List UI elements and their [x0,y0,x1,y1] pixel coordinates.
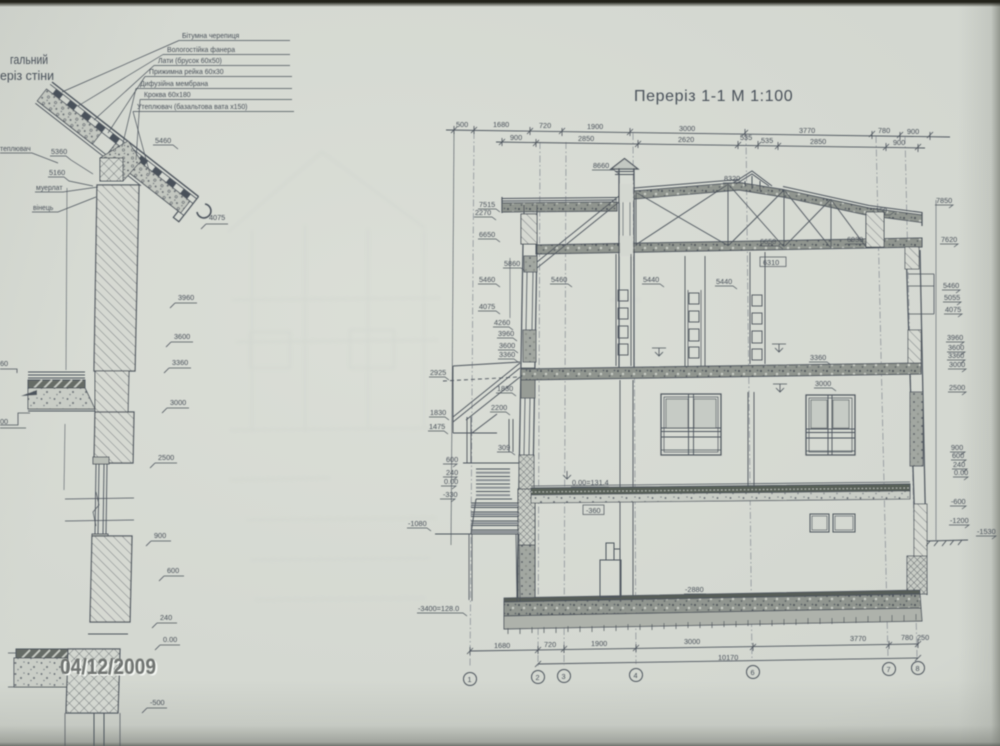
svg-text:04/12/2009: 04/12/2009 [60,654,156,679]
svg-text:0.00=131.4: 0.00=131.4 [572,478,609,487]
svg-text:теплювач: теплювач [0,146,31,153]
svg-text:2850: 2850 [578,134,594,143]
svg-text:вінець: вінець [33,204,54,212]
svg-text:3360: 3360 [810,353,826,362]
svg-text:3770: 3770 [799,126,815,135]
svg-text:4260: 4260 [494,318,510,327]
svg-text:3600: 3600 [174,332,190,341]
svg-text:3960: 3960 [947,333,963,342]
svg-text:535: 535 [740,133,752,142]
svg-text:6650: 6650 [760,237,776,246]
svg-text:1900: 1900 [587,122,603,131]
svg-text:1900: 1900 [591,639,607,648]
svg-text:3: 3 [562,672,566,681]
svg-text:-600: -600 [951,497,966,506]
svg-text:0.00: 0.00 [954,468,968,477]
svg-text:5460: 5460 [155,136,171,145]
svg-text:7620: 7620 [941,235,957,244]
svg-text:3360: 3360 [172,358,188,367]
svg-text:5055: 5055 [944,293,960,302]
svg-text:4075: 4075 [209,213,225,222]
svg-text:-360: -360 [586,506,601,515]
svg-text:250: 250 [917,633,929,642]
svg-text:-500: -500 [150,698,165,707]
svg-text:0.00: 0.00 [163,635,177,644]
svg-text:3960: 3960 [178,293,194,302]
svg-text:-1080: -1080 [408,519,427,528]
svg-text:муерлат: муерлат [36,185,63,192]
svg-text:6: 6 [751,668,755,677]
svg-text:535: 535 [761,136,773,145]
svg-text:5860: 5860 [504,259,520,268]
svg-text:5460: 5460 [551,275,567,284]
svg-text:4075: 4075 [945,305,961,314]
svg-text:240: 240 [446,468,458,477]
svg-text:-330: -330 [443,490,458,499]
svg-text:5160: 5160 [49,168,65,177]
svg-text:Переріз 1-1 М 1:100: Переріз 1-1 М 1:100 [634,88,793,105]
svg-text:Утеплювач (базальтова вата х15: Утеплювач (базальтова вата х150) [137,103,247,111]
svg-text:1830: 1830 [430,408,446,417]
svg-text:4075: 4075 [479,302,495,311]
svg-text:900: 900 [907,127,919,136]
svg-text:5460: 5460 [943,281,959,290]
svg-text:3960: 3960 [498,329,514,338]
svg-text:2850: 2850 [810,137,826,146]
svg-text:3360: 3360 [948,351,964,360]
svg-text:600: 600 [167,566,179,575]
svg-text:2620: 2620 [678,135,694,144]
svg-text:3770: 3770 [850,634,866,643]
svg-text:720: 720 [544,640,556,649]
svg-text:еріз стіни: еріз стіни [0,68,54,83]
svg-text:720: 720 [539,121,551,130]
svg-text:2270: 2270 [475,208,491,217]
svg-text:1475: 1475 [429,422,445,431]
svg-text:3360: 3360 [499,350,515,359]
svg-text:2200: 2200 [491,403,507,412]
svg-text:Кроква 60х180: Кроква 60х180 [144,92,191,99]
svg-text:1680: 1680 [493,120,509,129]
svg-text:60: 60 [0,359,8,368]
svg-text:5440: 5440 [716,277,732,286]
svg-text:Лати (брусок 60х50): Лати (брусок 60х50) [158,57,222,65]
svg-text:6650: 6650 [479,230,495,239]
svg-text:10170: 10170 [718,653,738,662]
svg-text:1830: 1830 [497,384,513,393]
svg-text:780: 780 [901,633,913,642]
svg-text:2500: 2500 [949,383,965,392]
svg-text:500: 500 [456,120,468,129]
svg-text:Прижимна рейка 60х30: Прижимна рейка 60х30 [149,68,224,76]
svg-text:-2880: -2880 [685,585,704,594]
svg-text:600: 600 [952,451,964,460]
svg-text:Вологостійка фанера: Вологостійка фанера [167,46,235,54]
svg-text:3000: 3000 [949,360,965,369]
svg-text:Дифузійна мембрана: Дифузійна мембрана [140,80,208,88]
svg-text:00: 00 [0,417,8,426]
svg-text:4: 4 [634,671,638,680]
svg-text:600: 600 [446,455,458,464]
svg-text:-1530: -1530 [977,527,996,536]
svg-text:6930: 6930 [847,235,863,244]
svg-text:7850: 7850 [936,196,952,205]
svg-text:2925: 2925 [430,368,446,377]
svg-text:2500: 2500 [158,453,174,462]
svg-text:8320: 8320 [724,174,740,183]
svg-text:309: 309 [498,443,510,452]
svg-text:900: 900 [154,531,166,540]
svg-text:900: 900 [893,138,905,147]
svg-text:гальний: гальний [10,52,48,67]
svg-text:-1200: -1200 [950,516,969,525]
svg-text:-3400=128.0: -3400=128.0 [418,604,459,613]
svg-text:3000: 3000 [679,124,695,133]
svg-text:Бітумна черепиця: Бітумна черепиця [182,32,240,40]
svg-text:5360: 5360 [51,147,67,156]
svg-text:1680: 1680 [494,641,510,650]
svg-text:3000: 3000 [815,379,831,388]
svg-text:5440: 5440 [643,275,659,284]
svg-text:240: 240 [160,613,172,622]
svg-text:0.00: 0.00 [444,477,458,486]
svg-text:900: 900 [510,133,522,142]
svg-text:3000: 3000 [170,398,186,407]
svg-text:3600: 3600 [499,341,515,350]
svg-text:1: 1 [468,675,472,684]
svg-text:5460: 5460 [479,275,495,284]
svg-text:3000: 3000 [684,637,700,646]
svg-text:2: 2 [536,673,540,682]
svg-text:7: 7 [887,665,891,674]
svg-text:780: 780 [878,126,890,135]
svg-text:8: 8 [916,664,920,673]
svg-text:8660: 8660 [593,161,609,170]
